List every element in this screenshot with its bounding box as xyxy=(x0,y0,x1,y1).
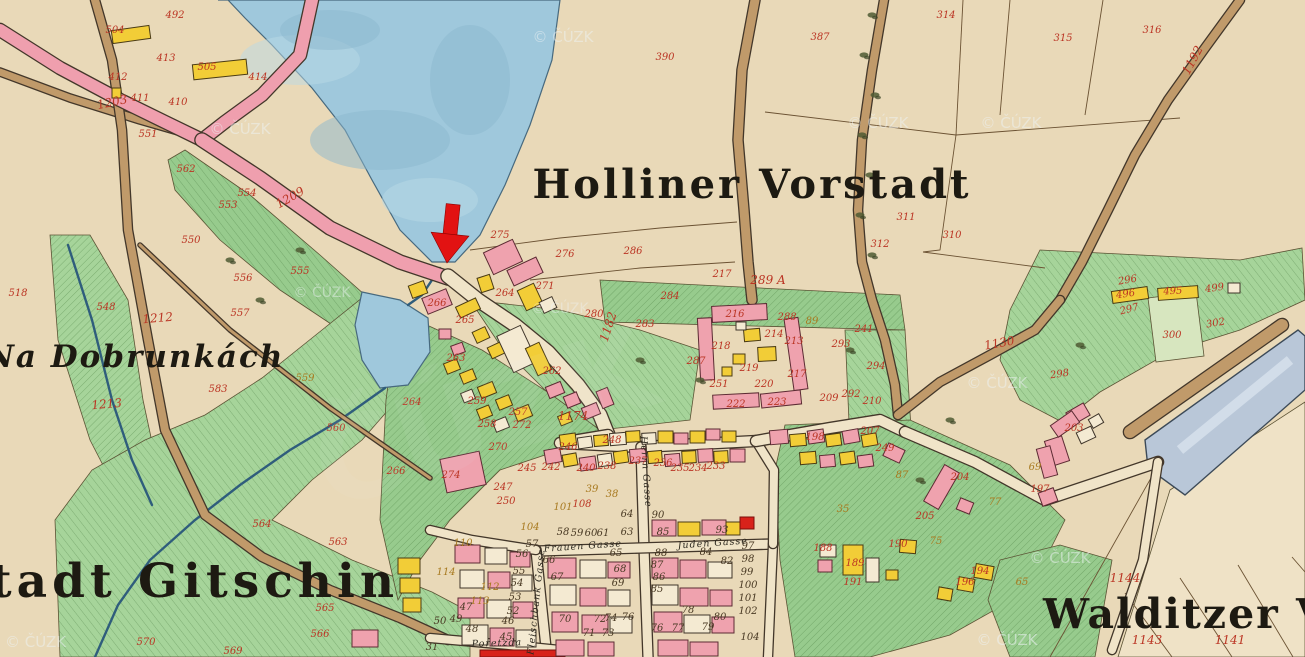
parcel-number-label: 50 xyxy=(434,616,447,627)
parcel-number-label: 1144 xyxy=(1110,571,1141,585)
building-pink xyxy=(857,454,874,468)
parcel-number-label: 218 xyxy=(710,341,730,352)
parcel-number-label: 35 xyxy=(837,504,850,515)
tree-symbol-shadow xyxy=(850,351,856,355)
parcel-number-label: 570 xyxy=(136,637,156,648)
building-yellow xyxy=(886,570,898,580)
parcel-number-label: 554 xyxy=(237,188,256,199)
parcel-number-label: 104 xyxy=(740,632,759,643)
parcel-number-label: 46 xyxy=(501,616,515,627)
building-yellow xyxy=(403,598,421,612)
parcel-number-label: 77 xyxy=(989,497,1002,508)
building-red xyxy=(740,517,754,529)
parcel-number-label: 61 xyxy=(597,528,610,539)
parcel-number-label: 275 xyxy=(489,230,509,241)
place-name-label: Holliner Vorstadt xyxy=(532,161,971,208)
building-pink xyxy=(842,429,860,445)
parcel-number-label: 583 xyxy=(208,384,227,395)
parcel-number-label: 557 xyxy=(230,308,250,319)
parcel-number-label: 222 xyxy=(725,399,745,410)
parcel-number-label: 87 xyxy=(651,560,664,571)
parcel-number-label: 411 xyxy=(129,93,149,104)
parcel-number-label: 190 xyxy=(888,539,908,550)
parcel-number-label: 310 xyxy=(942,230,962,241)
parcel-number-label: 65 xyxy=(1016,577,1029,588)
parcel-number-label: 53 xyxy=(509,592,522,603)
parcel-number-label: 294 xyxy=(865,361,885,372)
parcel-number-label: 49 xyxy=(449,614,463,625)
parcel-number-label: 114 xyxy=(436,567,455,578)
parcel-number-label: 48 xyxy=(465,624,479,635)
parcel-number-label: 191 xyxy=(843,577,862,588)
cuzk-watermark: © ČÚZK xyxy=(532,27,594,46)
parcel-number-label: 240 xyxy=(575,463,596,474)
building-yellow xyxy=(682,451,697,464)
building-yellow xyxy=(678,522,700,536)
street-name-label: Poretzda xyxy=(471,637,523,650)
parcel-number-label: 98 xyxy=(742,554,755,565)
parcel-number-label: 548 xyxy=(96,302,115,313)
building-yellow xyxy=(722,431,736,442)
building-outline xyxy=(736,322,746,330)
building-pink xyxy=(690,642,718,656)
building-pink xyxy=(658,640,688,656)
cuzk-watermark: © ČÚZK xyxy=(532,299,590,317)
building-red xyxy=(480,650,565,657)
parcel-number-label: 553 xyxy=(218,200,237,211)
building-pink xyxy=(730,449,745,462)
pond-texture xyxy=(430,25,510,135)
parcel-number-label: 85 xyxy=(651,584,664,595)
parcel-number-label: 101 xyxy=(553,502,572,513)
parcel-number-label: 213 xyxy=(783,336,803,347)
building-yellow xyxy=(937,587,953,601)
parcel-number-label: 82 xyxy=(721,556,734,567)
parcel-number-label: 67 xyxy=(551,572,564,583)
tree-symbol-shadow xyxy=(1080,346,1086,350)
parcel-number-label: 194 xyxy=(970,566,989,577)
place-name-label: Stadt Gitschin xyxy=(0,554,399,609)
parcel-number-label: 264 xyxy=(494,288,514,299)
parcel-number-label: 518 xyxy=(8,288,27,299)
pond-texture xyxy=(382,178,478,222)
pond-texture xyxy=(310,110,450,170)
building-pink xyxy=(439,329,451,339)
parcel-number-label: 214 xyxy=(763,329,783,340)
cuzk-watermark: © ČÚZK xyxy=(294,283,352,301)
building-yellow xyxy=(839,451,856,465)
parcel-number-label: 413 xyxy=(155,53,175,64)
parcel-number-label: 314 xyxy=(936,10,955,21)
building-pink xyxy=(820,454,836,467)
tree-symbol-shadow xyxy=(872,16,878,20)
parcel-number-label: 300 xyxy=(1162,330,1182,341)
parcel-number-label: 559 xyxy=(295,373,315,384)
parcel-number-label: 104 xyxy=(520,522,539,533)
parcel-number-label: 55 xyxy=(513,566,526,577)
tree-symbol-shadow xyxy=(300,251,306,255)
land-parcel-area xyxy=(1148,292,1204,362)
building-yellow xyxy=(825,433,842,447)
building-pink xyxy=(674,433,688,444)
parcel-number-label: 292 xyxy=(840,389,860,400)
parcel-number-label: 189 xyxy=(845,558,865,569)
parcel-number-label: 90 xyxy=(652,510,665,521)
parcel-number-label: 289 A xyxy=(749,273,786,287)
tree-symbol-shadow xyxy=(950,421,956,425)
cuzk-watermark: © ČÚZK xyxy=(209,119,271,138)
parcel-number-label: 390 xyxy=(655,52,675,63)
parcel-number-label: 220 xyxy=(753,379,774,390)
parcel-number-label: 88 xyxy=(655,548,668,559)
parcel-number-label: 69 xyxy=(612,578,625,589)
building-pink xyxy=(680,560,706,578)
parcel-number-label: 209 xyxy=(818,393,839,404)
beige-road xyxy=(768,544,773,657)
parcel-number-label: 207 xyxy=(859,426,880,437)
parcel-number-label: 216 xyxy=(724,309,745,320)
tree-symbol-shadow xyxy=(920,481,926,485)
parcel-number-label: 39 xyxy=(586,484,599,495)
parcel-number-label: 73 xyxy=(602,628,615,639)
parcel-number-label: 203 xyxy=(1063,423,1083,434)
parcel-number-label: 412 xyxy=(107,72,127,83)
cuzk-watermark: © ČÚZK xyxy=(980,113,1042,132)
parcel-number-label: 1212 xyxy=(142,310,174,327)
building-outline xyxy=(550,585,576,605)
parcel-number-label: 101 xyxy=(738,593,757,604)
parcel-number-label: 288 xyxy=(776,312,796,323)
parcel-number-label: 311 xyxy=(896,212,915,223)
parcel-number-label: 80 xyxy=(714,612,727,623)
parcel-number-label: 235 xyxy=(669,463,689,474)
tree-symbol-shadow xyxy=(864,56,870,60)
parcel-number-label: 75 xyxy=(930,536,943,547)
place-name-label: Walditzer Vor xyxy=(1042,590,1305,638)
parcel-number-label: 251 xyxy=(708,379,728,390)
building-pink xyxy=(352,630,378,647)
parcel-number-label: 293 xyxy=(830,339,850,350)
parcel-number-label: 113 xyxy=(470,596,489,607)
parcel-number-label: 550 xyxy=(181,235,201,246)
parcel-number-label: 38 xyxy=(606,489,619,500)
parcel-number-label: 551 xyxy=(138,129,157,140)
parcel-number-label: 87 xyxy=(896,470,909,481)
parcel-number-label: 99 xyxy=(741,567,754,578)
parcel-number-label: 563 xyxy=(328,537,347,548)
parcel-number-label: 102 xyxy=(738,606,757,617)
parcel-number-label: 58 xyxy=(557,527,570,538)
building-pink xyxy=(769,429,788,445)
parcel-number-label: 217 xyxy=(786,369,807,380)
parcel-number-label: 47 xyxy=(459,602,473,613)
parcel-number-label: 56 xyxy=(516,549,529,560)
building-yellow xyxy=(800,451,817,464)
tree-symbol-shadow xyxy=(230,261,236,265)
parcel-number-label: 564 xyxy=(252,519,271,530)
cuzk-watermark: © ČÚZK xyxy=(1029,548,1091,567)
parcel-number-label: 492 xyxy=(164,10,184,21)
building-pink xyxy=(706,429,720,440)
parcel-number-label: 68 xyxy=(614,564,627,575)
parcel-number-label: 196 xyxy=(955,577,975,588)
building-outline xyxy=(866,558,879,582)
parcel-number-label: 64 xyxy=(621,509,634,520)
parcel-number-label: 210 xyxy=(861,396,882,407)
parcel-number-label: 387 xyxy=(810,32,830,43)
parcel-number-label: 108 xyxy=(572,499,591,510)
arrow-shaft xyxy=(443,204,460,237)
parcel-number-label: 276 xyxy=(554,249,575,260)
tree-symbol-shadow xyxy=(700,381,706,385)
parcel-number-label: 110 xyxy=(453,538,473,549)
parcel-number-label: 315 xyxy=(1053,33,1072,44)
parcel-number-label: 556 xyxy=(233,273,253,284)
parcel-number-label: 234 xyxy=(687,463,707,474)
parcel-number-label: 59 xyxy=(571,528,584,539)
parcel-number-label: 63 xyxy=(621,527,634,538)
parcel-number-label: 31 xyxy=(426,642,439,653)
cuzk-watermark: © ČÚZK xyxy=(5,632,67,651)
parcel-number-label: 233 xyxy=(705,461,725,472)
parcel-number-label: 74 xyxy=(605,613,618,624)
parcel-number-label: 198 xyxy=(805,432,824,443)
parcel-number-label: 238 xyxy=(596,461,616,472)
parcel-number-label: 287 xyxy=(685,356,706,367)
parcel-number-label: 414 xyxy=(247,72,267,83)
parcel-number-label: 562 xyxy=(176,164,195,175)
building-outline xyxy=(608,590,630,606)
building-yellow xyxy=(658,431,673,443)
building-pink xyxy=(710,590,732,606)
parcel-number-label: 265 xyxy=(454,315,474,326)
parcel-number-label: 86 xyxy=(653,572,666,583)
parcel-number-label: 112 xyxy=(480,582,499,593)
tree-symbol-shadow xyxy=(862,136,868,140)
map-viewport[interactable]: 4925045054134124114104141203120955156255… xyxy=(0,0,1305,657)
building-yellow xyxy=(400,578,420,593)
building-pink xyxy=(680,588,708,606)
parcel-number-label: 71 xyxy=(583,628,596,639)
parcel-number-label: 79 xyxy=(702,622,715,633)
cuzk-watermark: © ČÚZK xyxy=(847,113,909,132)
tree-symbol-shadow xyxy=(875,96,881,100)
building-yellow xyxy=(690,431,705,443)
parcel-number-label: 69 xyxy=(1029,462,1042,473)
parcel-number-label: 77 xyxy=(672,623,685,634)
parcel-number-label: 89 xyxy=(806,316,819,327)
parcel-number-label: 316 xyxy=(1142,25,1162,36)
parcel-number-label: 197 xyxy=(1030,484,1050,495)
parcel-number-label: 312 xyxy=(870,239,889,250)
parcel-number-label: 78 xyxy=(682,605,695,616)
parcel-number-label: 205 xyxy=(914,511,934,522)
building-yellow xyxy=(722,367,732,376)
tree-symbol-shadow xyxy=(872,256,878,260)
parcel-number-label: 204 xyxy=(949,472,969,483)
parcel-number-label: 266 xyxy=(426,298,447,309)
place-name-label: Na Dobrunkách xyxy=(0,339,284,375)
building-outline xyxy=(1228,283,1240,293)
parcel-number-label: 85 xyxy=(657,527,670,538)
tree-symbol-shadow xyxy=(260,301,266,305)
parcel-number-label: 188 xyxy=(813,543,832,554)
parcel-number-label: 223 xyxy=(766,397,786,408)
cuzk-watermark: © ČÚZK xyxy=(966,373,1028,392)
building-yellow xyxy=(758,347,777,362)
parcel-number-label: 410 xyxy=(167,97,188,108)
building-pink xyxy=(580,588,606,606)
building-outline xyxy=(580,560,606,578)
parcel-number-label: 100 xyxy=(738,580,758,591)
building-pink xyxy=(556,640,584,656)
parcel-number-label: 271 xyxy=(534,281,554,292)
parcel-number-label: 286 xyxy=(622,246,643,257)
parcel-number-label: 1213 xyxy=(91,396,123,413)
parcel-number-label: 76 xyxy=(651,623,664,634)
parcel-number-label: 284 xyxy=(659,291,679,302)
parcel-number-label: 93 xyxy=(716,525,729,536)
building-pink xyxy=(588,642,614,656)
tree-symbol-shadow xyxy=(860,216,866,220)
parcel-number-label: 70 xyxy=(559,614,572,625)
building-yellow xyxy=(790,433,807,446)
cuzk-watermark: © ČÚZK xyxy=(976,630,1038,649)
parcel-number-label: 566 xyxy=(310,629,330,640)
parcel-number-label: 555 xyxy=(290,266,309,277)
parcel-number-label: 249 xyxy=(874,443,895,454)
parcel-number-label: 505 xyxy=(197,62,216,73)
parcel-number-label: 217 xyxy=(711,269,732,280)
parcel-number-label: 569 xyxy=(223,646,243,657)
parcel-number-label: 241 xyxy=(853,324,873,335)
cadastral-map-canvas[interactable]: 4925045054134124114104141203120955156255… xyxy=(0,0,1305,657)
building-pink xyxy=(818,560,832,572)
parcel-number-label: 250 xyxy=(495,496,516,507)
parcel-number-label: 504 xyxy=(105,25,124,36)
parcel-number-label: 54 xyxy=(511,578,524,589)
parcel-number-label: 76 xyxy=(622,612,635,623)
building-outline xyxy=(485,548,507,564)
parcel-number-label: 219 xyxy=(738,363,759,374)
parcel-number-label: 495 xyxy=(1162,286,1183,298)
building-yellow xyxy=(398,558,420,574)
